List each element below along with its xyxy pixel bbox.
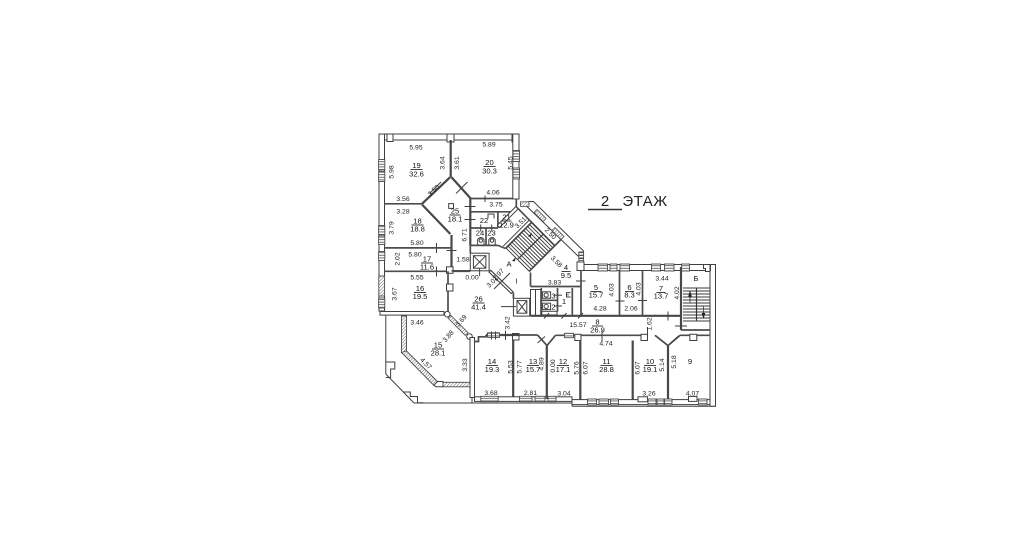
svg-text:2.06: 2.06 xyxy=(624,306,637,313)
svg-text:3.61: 3.61 xyxy=(454,156,461,169)
svg-text:2.81: 2.81 xyxy=(524,390,537,397)
svg-text:6.71: 6.71 xyxy=(462,228,469,241)
svg-text:19.5: 19.5 xyxy=(413,292,428,301)
svg-text:3.68: 3.68 xyxy=(484,390,497,397)
svg-text:4.02: 4.02 xyxy=(674,286,681,299)
svg-text:2: 2 xyxy=(601,193,609,210)
svg-text:19.3: 19.3 xyxy=(485,365,500,374)
svg-text:17.1: 17.1 xyxy=(556,365,571,374)
svg-text:26.9: 26.9 xyxy=(590,326,605,335)
svg-text:41.4: 41.4 xyxy=(471,303,486,312)
svg-text:30.3: 30.3 xyxy=(482,167,497,176)
svg-text:9: 9 xyxy=(688,357,692,366)
svg-text:19.1: 19.1 xyxy=(643,365,658,374)
svg-text:5.18: 5.18 xyxy=(671,355,678,368)
svg-text:3.83: 3.83 xyxy=(548,280,561,287)
svg-text:5.98: 5.98 xyxy=(389,165,396,178)
svg-text:2: 2 xyxy=(551,303,555,312)
svg-text:3.56: 3.56 xyxy=(396,196,409,203)
svg-text:23: 23 xyxy=(487,229,495,238)
svg-text:5.80: 5.80 xyxy=(408,252,421,259)
svg-text:4.07: 4.07 xyxy=(686,391,699,398)
svg-text:6.07: 6.07 xyxy=(583,361,590,374)
svg-text:4.28: 4.28 xyxy=(593,306,606,313)
svg-text:2.02: 2.02 xyxy=(395,252,402,265)
svg-text:I: I xyxy=(515,277,517,286)
svg-text:3.04: 3.04 xyxy=(557,391,570,398)
svg-text:15.57: 15.57 xyxy=(569,322,586,329)
svg-text:9.5: 9.5 xyxy=(561,271,572,280)
svg-text:3: 3 xyxy=(551,292,555,301)
svg-text:3.67: 3.67 xyxy=(392,287,399,300)
svg-text:3.46: 3.46 xyxy=(410,320,423,327)
svg-text:0.00: 0.00 xyxy=(465,275,478,282)
svg-text:5.45: 5.45 xyxy=(508,156,515,169)
svg-text:5.76: 5.76 xyxy=(574,361,581,374)
svg-text:ЭТАЖ: ЭТАЖ xyxy=(622,193,667,210)
svg-text:13.7: 13.7 xyxy=(654,292,669,301)
svg-text:3.26: 3.26 xyxy=(642,391,655,398)
svg-text:5.55: 5.55 xyxy=(410,275,423,282)
svg-text:5.53: 5.53 xyxy=(508,360,515,373)
svg-text:24: 24 xyxy=(476,229,484,238)
svg-text:4.74: 4.74 xyxy=(599,341,612,348)
svg-text:5.89: 5.89 xyxy=(482,142,495,149)
svg-text:1.58: 1.58 xyxy=(456,257,469,264)
svg-text:3.42: 3.42 xyxy=(505,316,512,329)
svg-text:1: 1 xyxy=(562,297,566,306)
svg-text:3.79: 3.79 xyxy=(389,221,396,234)
svg-text:3.33: 3.33 xyxy=(462,358,469,371)
svg-text:12.9: 12.9 xyxy=(499,221,514,230)
svg-text:Б: Б xyxy=(694,274,699,283)
svg-text:3.64: 3.64 xyxy=(440,156,447,169)
svg-text:28.8: 28.8 xyxy=(599,365,614,374)
svg-text:3.44: 3.44 xyxy=(655,276,668,283)
svg-text:3.75: 3.75 xyxy=(489,202,502,209)
svg-text:18.8: 18.8 xyxy=(410,225,425,234)
svg-text:18.1: 18.1 xyxy=(448,215,463,224)
svg-text:4.03: 4.03 xyxy=(609,283,616,296)
svg-text:4.89: 4.89 xyxy=(539,357,546,370)
svg-text:32.6: 32.6 xyxy=(409,170,424,179)
svg-text:4.06: 4.06 xyxy=(486,190,499,197)
svg-text:4.03: 4.03 xyxy=(636,282,643,295)
svg-text:15.7: 15.7 xyxy=(589,291,604,300)
svg-text:5.77: 5.77 xyxy=(517,360,524,373)
svg-text:22: 22 xyxy=(480,216,488,225)
svg-text:3.28: 3.28 xyxy=(396,209,409,216)
svg-text:8.3: 8.3 xyxy=(624,291,635,300)
svg-text:6.07: 6.07 xyxy=(635,361,642,374)
svg-text:28.1: 28.1 xyxy=(431,349,446,358)
svg-text:5.80: 5.80 xyxy=(410,240,423,247)
svg-text:0.00: 0.00 xyxy=(550,359,557,372)
svg-text:5.95: 5.95 xyxy=(409,145,422,152)
svg-text:1.62: 1.62 xyxy=(647,317,654,330)
svg-text:5.14: 5.14 xyxy=(659,358,666,371)
svg-text:11.6: 11.6 xyxy=(420,263,434,272)
